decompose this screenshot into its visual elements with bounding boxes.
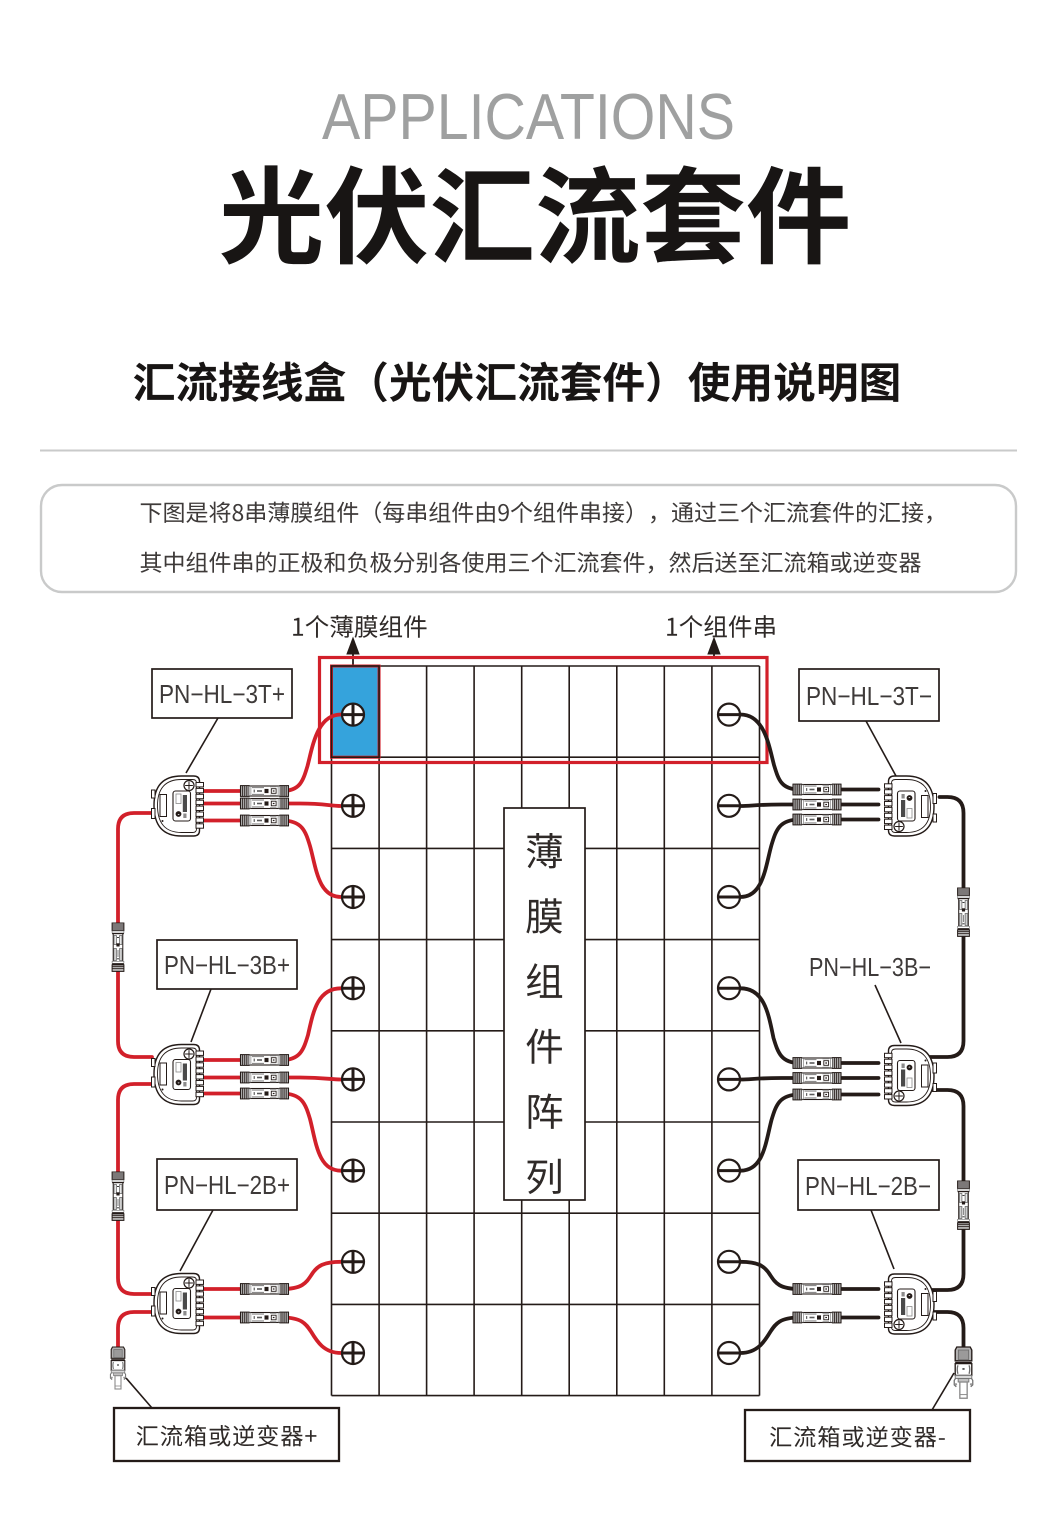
svg-text:PN−HL−3T+: PN−HL−3T+ <box>159 679 285 709</box>
svg-text:PN−HL−2B+: PN−HL−2B+ <box>164 1170 290 1200</box>
svg-text:PN−HL−3T−: PN−HL−3T− <box>806 681 932 711</box>
svg-text:PN−HL−2B−: PN−HL−2B− <box>805 1171 931 1201</box>
svg-text:PN−HL−3B+: PN−HL−3B+ <box>164 950 290 980</box>
svg-text:PN−HL−3B−: PN−HL−3B− <box>809 952 931 982</box>
svg-text:APPLICATIONS: APPLICATIONS <box>322 81 735 153</box>
